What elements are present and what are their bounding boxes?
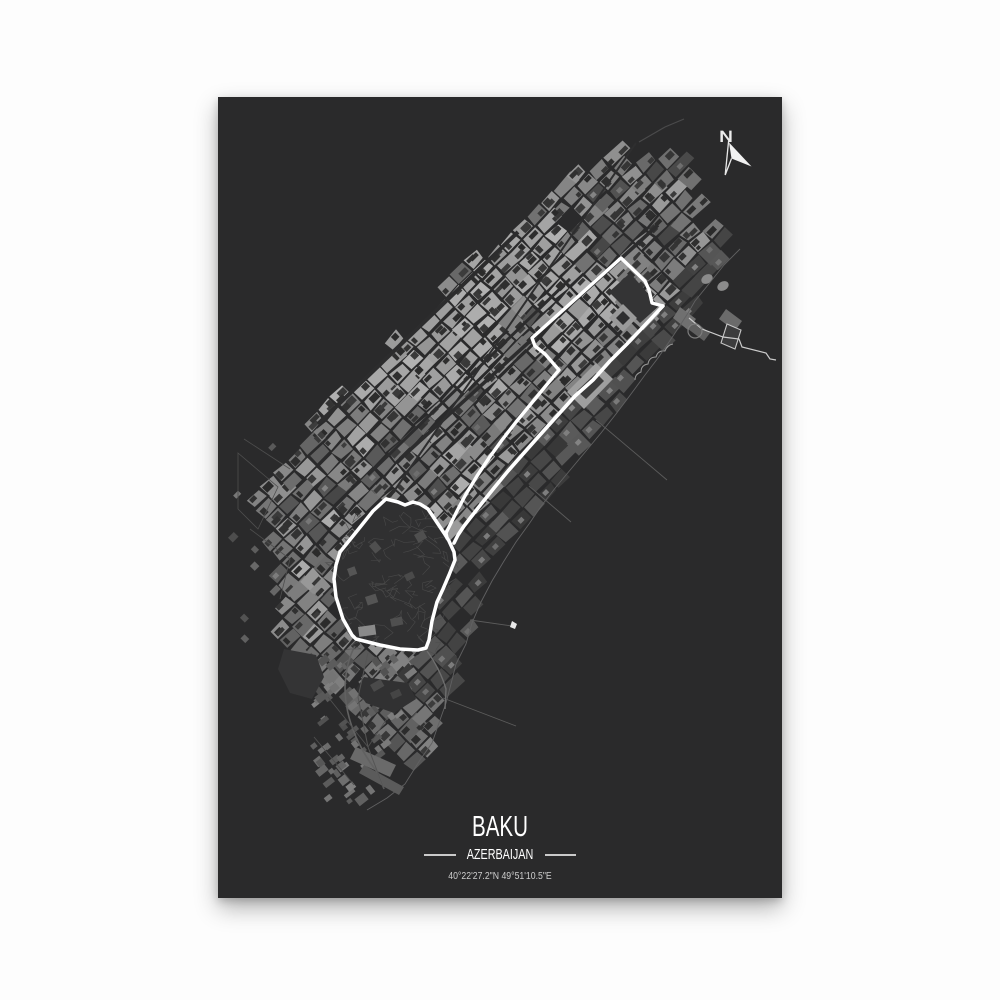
svg-text:BAKU: BAKU	[472, 811, 528, 843]
svg-text:AZERBAIJAN: AZERBAIJAN	[467, 845, 534, 862]
svg-text:40°22'27.2"N 49°51'10.5"E: 40°22'27.2"N 49°51'10.5"E	[448, 870, 551, 882]
